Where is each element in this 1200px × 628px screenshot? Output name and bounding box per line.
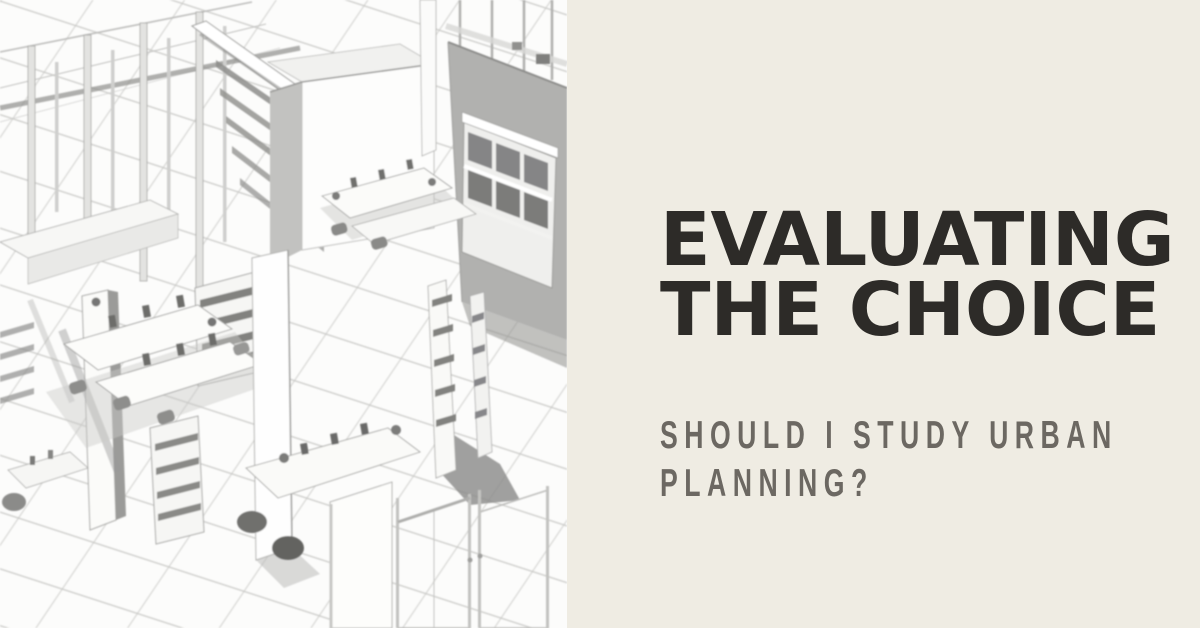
text-panel: EVALUATING THE CHOICE SHOULD I STUDY URB…: [567, 0, 1200, 628]
blog-banner: EVALUATING THE CHOICE SHOULD I STUDY URB…: [0, 0, 1200, 628]
banner-title: EVALUATING THE CHOICE: [660, 205, 1200, 345]
hero-image-panel: [0, 0, 567, 628]
title-line-1: EVALUATING: [660, 205, 1200, 275]
title-line-2: THE CHOICE: [660, 275, 1200, 345]
slatted-shelf-lower: [150, 416, 204, 544]
subtitle-line-1: SHOULD I STUDY URBAN: [660, 411, 1118, 459]
office-wireframe-illustration: [0, 0, 567, 628]
subtitle-line-2: PLANNING?: [660, 459, 1118, 507]
banner-subtitle: SHOULD I STUDY URBAN PLANNING?: [660, 411, 1118, 508]
